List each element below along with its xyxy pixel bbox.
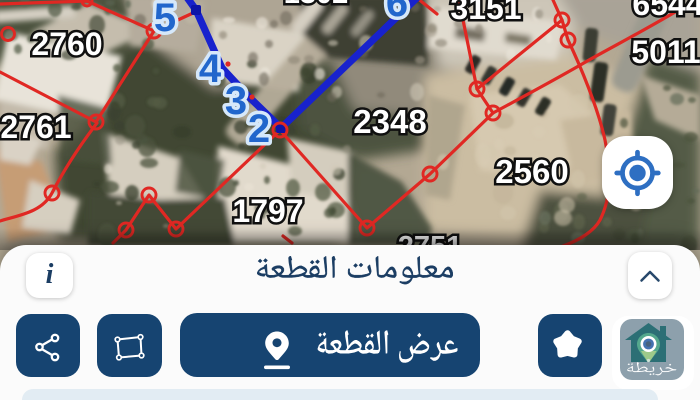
svg-text:3151: 3151 [450, 0, 521, 26]
svg-text:6: 6 [386, 0, 408, 25]
svg-text:1302: 1302 [284, 0, 349, 10]
svg-text:2760: 2760 [31, 26, 102, 62]
svg-text:6544: 6544 [632, 0, 700, 22]
svg-text:5: 5 [154, 0, 176, 40]
svg-text:2560: 2560 [495, 153, 568, 190]
svg-text:3: 3 [225, 79, 247, 123]
svg-text:4: 4 [199, 47, 222, 91]
svg-text:2: 2 [248, 107, 270, 151]
svg-text:1797: 1797 [232, 193, 303, 229]
svg-text:5011: 5011 [631, 34, 700, 70]
svg-text:2761: 2761 [0, 109, 71, 145]
svg-text:2348: 2348 [353, 103, 426, 140]
